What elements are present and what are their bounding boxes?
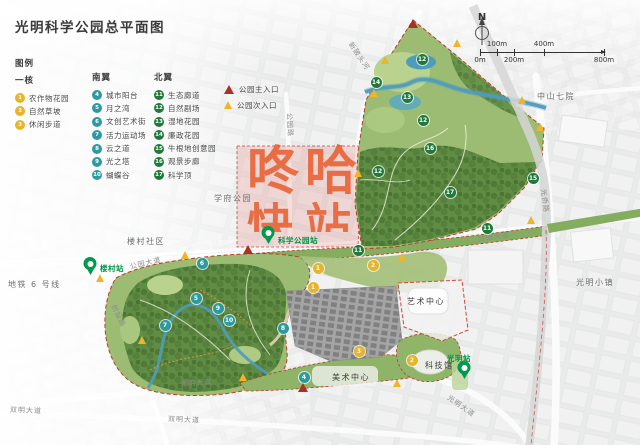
feature-marker-2: 2 bbox=[368, 260, 379, 271]
map-label-road: 公园路 bbox=[284, 113, 295, 137]
legend-item-label: 休闲步道 bbox=[29, 119, 61, 130]
feature-marker-17: 17 bbox=[445, 187, 456, 198]
legend-section-2: 北翼11生态廊道12自然剧场13湿地花园14廉政花园15牛根地创意园16观景步廊… bbox=[154, 71, 216, 184]
scale-tick bbox=[497, 49, 498, 56]
legend-item-label: 文创艺术街 bbox=[106, 116, 146, 127]
map-label-area: 光明小镇 bbox=[576, 277, 614, 288]
feature-marker-1: 1 bbox=[313, 263, 324, 274]
secondary-entrance-marker bbox=[354, 169, 362, 177]
map-label-area: 楼村社区 bbox=[127, 236, 165, 247]
legend-item-number: 3 bbox=[15, 120, 25, 130]
feature-marker-16: 16 bbox=[425, 143, 436, 154]
metro-station-pin bbox=[262, 226, 275, 245]
legend-item-number: 4 bbox=[92, 90, 102, 100]
secondary-entrance-marker bbox=[96, 274, 104, 282]
legend-item-label: 自然草坡 bbox=[29, 106, 61, 117]
secondary-entrance-marker bbox=[398, 253, 406, 261]
legend-item: 9光之塔 bbox=[92, 157, 146, 167]
map-label-road: 光明大道 bbox=[180, 377, 212, 389]
legend-item-number: 6 bbox=[92, 117, 102, 127]
secondary-entrance-marker bbox=[381, 56, 389, 64]
feature-marker-3: 3 bbox=[354, 346, 365, 357]
legend-item-label: 廉政花园 bbox=[168, 130, 200, 141]
legend-item: 2自然草坡 bbox=[15, 106, 69, 116]
scale-tick-label: 200m bbox=[504, 56, 524, 64]
legend-item-number: 8 bbox=[92, 144, 102, 154]
map-label-area: 学府公园 bbox=[214, 193, 252, 204]
entrance-legend-item: 公园主入口 bbox=[224, 84, 279, 94]
scale-tick bbox=[480, 49, 481, 56]
legend-item-label: 自然剧场 bbox=[168, 103, 200, 114]
compass: N bbox=[470, 13, 494, 23]
legend-item: 14廉政花园 bbox=[154, 130, 216, 140]
legend-item-label: 湿地花园 bbox=[168, 116, 200, 127]
scale-tick-label: 0m bbox=[474, 56, 485, 64]
feature-marker-7: 7 bbox=[160, 320, 171, 331]
feature-marker-15: 15 bbox=[528, 173, 539, 184]
legend-section-name: 南翼 bbox=[92, 71, 146, 83]
scale-tick bbox=[604, 49, 605, 56]
map-label-area: 中山七院 bbox=[537, 91, 575, 102]
scale-tick-label: 800m bbox=[594, 56, 614, 64]
page-title: 光明科学公园总平面图 bbox=[15, 16, 165, 36]
secondary-entrance-marker bbox=[536, 123, 544, 131]
legend-item-label: 蝴蝶谷 bbox=[106, 170, 130, 181]
legend-item-number: 15 bbox=[154, 144, 164, 154]
secondary-entrance-marker bbox=[181, 251, 189, 259]
map-canvas bbox=[0, 0, 640, 445]
legend-item: 3休闲步道 bbox=[15, 120, 69, 130]
feature-marker-6: 6 bbox=[197, 258, 208, 269]
map-label-poi: 美术中心 bbox=[332, 372, 370, 383]
map-label-road: 双明大道 bbox=[168, 414, 200, 426]
legend-item: 12自然剧场 bbox=[154, 103, 216, 113]
feature-marker-14: 14 bbox=[371, 77, 382, 88]
legend-item: 6文创艺术街 bbox=[92, 117, 146, 127]
entrance-legend-label: 公园次入口 bbox=[237, 100, 277, 111]
legend-item-number: 10 bbox=[92, 170, 102, 180]
legend-item-label: 农作物花园 bbox=[29, 93, 69, 104]
feature-marker-12: 12 bbox=[418, 115, 429, 126]
entrance-legend: 公园主入口公园次入口 bbox=[224, 84, 279, 116]
scale-bar: 0m100m200m400m800m bbox=[480, 40, 604, 66]
legend-item-number: 12 bbox=[154, 103, 164, 113]
metro-station-pin bbox=[84, 257, 97, 276]
legend-section-name: 北翼 bbox=[154, 71, 216, 83]
entrance-legend-item: 公园次入口 bbox=[224, 100, 279, 110]
metro-station-label: 科学公园站 bbox=[278, 235, 318, 246]
legend-item: 4城市阳台 bbox=[92, 90, 146, 100]
legend-item-label: 牛根地创意园 bbox=[168, 143, 216, 154]
legend-item-label: 活力运动场 bbox=[106, 130, 146, 141]
legend-item-number: 11 bbox=[154, 90, 164, 100]
metro-pin-tail-icon bbox=[86, 268, 94, 279]
secondary-entrance-marker bbox=[138, 336, 146, 344]
feature-marker-2: 2 bbox=[407, 355, 418, 366]
secondary-entrance-marker bbox=[239, 373, 247, 381]
secondary-entrance-marker bbox=[393, 379, 401, 387]
legend-item-number: 14 bbox=[154, 130, 164, 140]
legend-item-label: 城市阳台 bbox=[106, 90, 138, 101]
metro-pin-tail-icon bbox=[264, 237, 272, 248]
legend-item-label: 科学顶 bbox=[168, 170, 192, 181]
secondary-entrance-marker bbox=[453, 39, 461, 47]
feature-marker-12: 12 bbox=[417, 54, 428, 65]
metro-station-label: 光明站 bbox=[447, 353, 471, 364]
legend-item-label: 观景步廊 bbox=[168, 156, 200, 167]
legend-item: 13湿地花园 bbox=[154, 117, 216, 127]
legend-item-number: 7 bbox=[92, 130, 102, 140]
scale-tick bbox=[514, 49, 515, 56]
planning-zone bbox=[237, 146, 362, 247]
map-label-poi: 艺术中心 bbox=[407, 296, 445, 307]
legend-item: 10蝴蝶谷 bbox=[92, 170, 146, 180]
feature-marker-9: 9 bbox=[213, 303, 224, 314]
scale-tick bbox=[544, 49, 545, 56]
main-entrance-marker bbox=[408, 19, 418, 28]
park-master-plan: 光明科学公园总平面图 图例 一核1农作物花园2自然草坡3休闲步道南翼4城市阳台5… bbox=[0, 0, 640, 445]
legend-item: 15牛根地创意园 bbox=[154, 144, 216, 154]
legend-item: 1农作物花园 bbox=[15, 93, 69, 103]
map-label-area: 地铁 6 号线 bbox=[8, 279, 61, 290]
legend-item-label: 云之道 bbox=[106, 143, 130, 154]
scale-tick-label: 100m bbox=[487, 40, 507, 48]
legend-item: 11生态廊道 bbox=[154, 90, 216, 100]
legend-item-number: 5 bbox=[92, 103, 102, 113]
map-label-road: 双明大道 bbox=[10, 405, 42, 416]
secondary-entrance-marker bbox=[527, 216, 535, 224]
legend-item-label: 月之湾 bbox=[106, 103, 130, 114]
legend-item-number: 16 bbox=[154, 157, 164, 167]
legend-item-label: 光之塔 bbox=[106, 156, 130, 167]
legend-item-label: 生态廊道 bbox=[168, 90, 200, 101]
feature-marker-11: 11 bbox=[353, 245, 364, 256]
legend-section-1: 南翼4城市阳台5月之湾6文创艺术街7活力运动场8云之道9光之塔10蝴蝶谷 bbox=[92, 71, 146, 184]
legend-item-number: 17 bbox=[154, 170, 164, 180]
main-entrance-icon bbox=[224, 85, 234, 94]
metro-station-label: 楼村站 bbox=[100, 263, 124, 274]
secondary-entrance-marker bbox=[370, 89, 378, 97]
entrance-legend-label: 公园主入口 bbox=[239, 84, 279, 95]
scale-bar-line bbox=[480, 52, 604, 53]
feature-marker-5: 5 bbox=[191, 293, 202, 304]
legend-item-number: 2 bbox=[15, 106, 25, 116]
feature-marker-1: 1 bbox=[308, 282, 319, 293]
legend-item: 8云之道 bbox=[92, 144, 146, 154]
legend-item-number: 1 bbox=[15, 93, 25, 103]
legend-heading: 图例 bbox=[15, 57, 34, 69]
feature-marker-4: 4 bbox=[299, 372, 310, 383]
feature-marker-12: 12 bbox=[373, 166, 384, 177]
legend-section-0: 一核1农作物花园2自然草坡3休闲步道 bbox=[15, 74, 69, 133]
metro-pin-tail-icon bbox=[460, 372, 468, 383]
scale-tick-label: 400m bbox=[534, 40, 554, 48]
legend-item: 16观景步廊 bbox=[154, 157, 216, 167]
feature-marker-10: 10 bbox=[224, 315, 235, 326]
main-entrance-marker bbox=[243, 245, 253, 254]
main-entrance-marker bbox=[298, 383, 308, 392]
secondary-entrance-icon bbox=[224, 101, 232, 109]
legend-item: 7活力运动场 bbox=[92, 130, 146, 140]
legend-item: 17科学顶 bbox=[154, 170, 216, 180]
feature-marker-8: 8 bbox=[278, 323, 289, 334]
urban-village bbox=[286, 286, 402, 361]
legend-item-number: 9 bbox=[92, 157, 102, 167]
legend-item-number: 13 bbox=[154, 117, 164, 127]
secondary-entrance-marker bbox=[518, 96, 526, 104]
feature-marker-11: 11 bbox=[482, 223, 493, 234]
feature-marker-13: 13 bbox=[402, 92, 413, 103]
legend-item: 5月之湾 bbox=[92, 103, 146, 113]
legend-section-name: 一核 bbox=[15, 74, 69, 86]
